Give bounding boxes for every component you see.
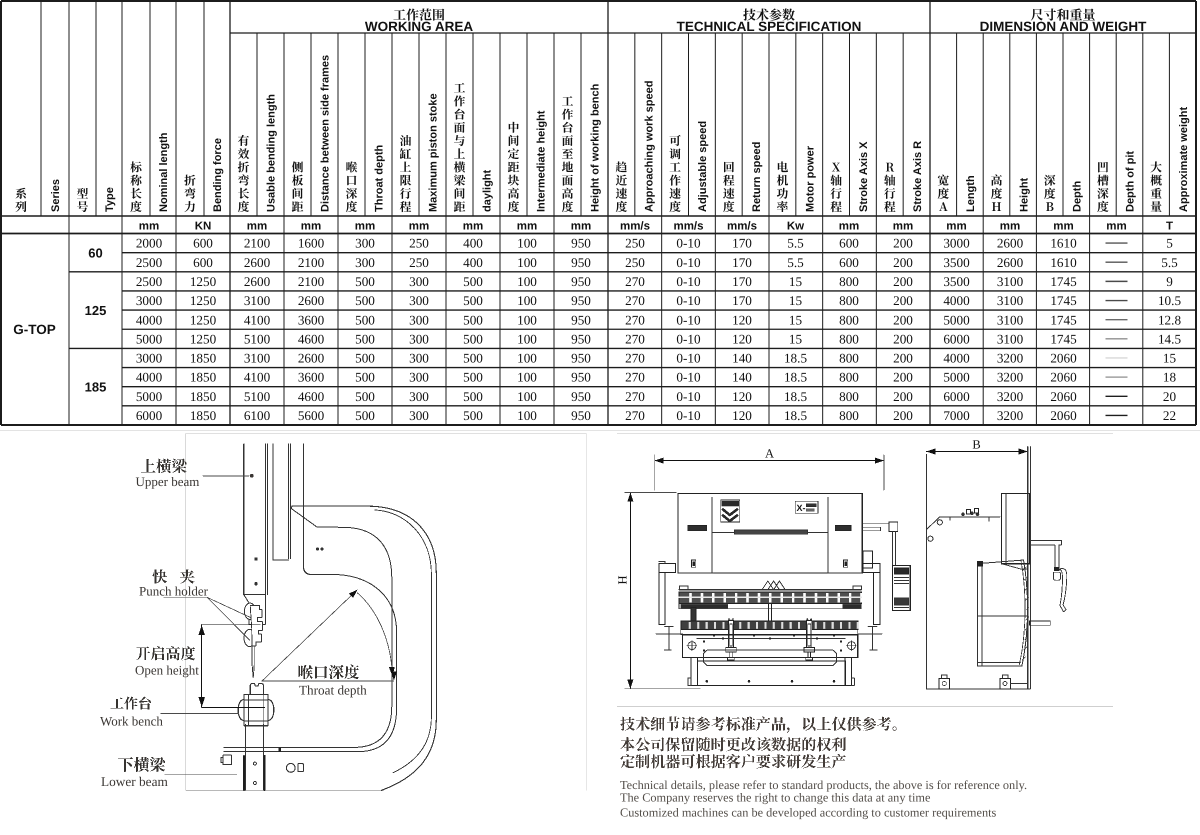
svg-text:500: 500 bbox=[463, 408, 483, 423]
svg-text:1745: 1745 bbox=[1050, 274, 1077, 289]
svg-text:500: 500 bbox=[355, 331, 375, 346]
svg-text:170: 170 bbox=[732, 274, 752, 289]
svg-text:200: 200 bbox=[893, 370, 913, 385]
svg-text:100: 100 bbox=[517, 293, 537, 308]
svg-text:Customized machines can be dev: Customized machines can be developed acc… bbox=[620, 806, 997, 820]
svg-text:Nominal length: Nominal length bbox=[158, 132, 170, 212]
svg-text:1745: 1745 bbox=[1050, 293, 1077, 308]
svg-text:Usable bending length: Usable bending length bbox=[266, 94, 278, 212]
svg-text:5100: 5100 bbox=[244, 331, 271, 346]
svg-text:500: 500 bbox=[463, 312, 483, 327]
svg-text:0-10: 0-10 bbox=[676, 293, 701, 308]
svg-text:100: 100 bbox=[517, 274, 537, 289]
svg-text:Stroke Axis R: Stroke Axis R bbox=[912, 141, 924, 212]
svg-text:500: 500 bbox=[355, 389, 375, 404]
svg-text:3000: 3000 bbox=[943, 236, 970, 251]
svg-text:Throat depth: Throat depth bbox=[374, 145, 386, 212]
svg-text:950: 950 bbox=[571, 408, 591, 423]
svg-text:270: 270 bbox=[625, 408, 645, 423]
svg-text:15: 15 bbox=[789, 274, 803, 289]
svg-text:950: 950 bbox=[571, 351, 591, 366]
svg-text:mm: mm bbox=[517, 221, 537, 233]
svg-text:0-10: 0-10 bbox=[676, 331, 701, 346]
svg-text:120: 120 bbox=[732, 312, 752, 327]
svg-text:5000: 5000 bbox=[136, 389, 163, 404]
svg-text:250: 250 bbox=[625, 255, 645, 270]
svg-text:1250: 1250 bbox=[190, 274, 217, 289]
svg-text:950: 950 bbox=[571, 389, 591, 404]
svg-text:mm/s: mm/s bbox=[673, 221, 703, 233]
svg-text:300: 300 bbox=[409, 312, 429, 327]
svg-text:0-10: 0-10 bbox=[676, 255, 701, 270]
svg-text:6000: 6000 bbox=[136, 408, 163, 423]
svg-text:2600: 2600 bbox=[997, 255, 1024, 270]
svg-text:Height: Height bbox=[1018, 177, 1030, 212]
svg-text:500: 500 bbox=[355, 312, 375, 327]
svg-text:0-10: 0-10 bbox=[676, 351, 701, 366]
svg-text:5.5: 5.5 bbox=[1161, 255, 1178, 270]
svg-text:mm: mm bbox=[139, 221, 159, 233]
svg-text:Adjustable speed: Adjustable speed bbox=[697, 121, 709, 212]
svg-text:800: 800 bbox=[839, 370, 859, 385]
svg-text:300: 300 bbox=[355, 236, 375, 251]
svg-text:9: 9 bbox=[1166, 274, 1173, 289]
svg-text:5000: 5000 bbox=[943, 370, 970, 385]
svg-text:mm/s: mm/s bbox=[727, 221, 757, 233]
svg-text:1745: 1745 bbox=[1050, 312, 1077, 327]
svg-text:6000: 6000 bbox=[943, 389, 970, 404]
svg-text:400: 400 bbox=[463, 236, 483, 251]
svg-text:300: 300 bbox=[409, 331, 429, 346]
svg-text:3500: 3500 bbox=[943, 255, 970, 270]
svg-text:B: B bbox=[972, 438, 980, 452]
svg-text:200: 200 bbox=[893, 236, 913, 251]
svg-text:0-10: 0-10 bbox=[676, 236, 701, 251]
svg-text:1850: 1850 bbox=[190, 351, 217, 366]
svg-text:500: 500 bbox=[463, 370, 483, 385]
svg-text:800: 800 bbox=[839, 389, 859, 404]
svg-text:Bending force: Bending force bbox=[212, 138, 224, 212]
svg-text:185: 185 bbox=[85, 380, 107, 395]
svg-text:2600: 2600 bbox=[244, 255, 271, 270]
svg-text:The Company reserves the right: The Company reserves the right to change… bbox=[620, 791, 931, 805]
svg-text:270: 270 bbox=[625, 331, 645, 346]
svg-text:800: 800 bbox=[839, 331, 859, 346]
svg-text:1610: 1610 bbox=[1050, 255, 1077, 270]
svg-text:800: 800 bbox=[839, 274, 859, 289]
svg-text:3200: 3200 bbox=[997, 408, 1024, 423]
svg-text:0-10: 0-10 bbox=[676, 312, 701, 327]
svg-text:KN: KN bbox=[195, 221, 212, 233]
svg-text:18.5: 18.5 bbox=[784, 408, 807, 423]
svg-text:1745: 1745 bbox=[1050, 331, 1077, 346]
svg-text:200: 200 bbox=[893, 331, 913, 346]
svg-text:Throat depth: Throat depth bbox=[299, 683, 367, 698]
svg-text:100: 100 bbox=[517, 389, 537, 404]
svg-text:3600: 3600 bbox=[298, 370, 325, 385]
svg-text:300: 300 bbox=[409, 370, 429, 385]
svg-text:950: 950 bbox=[571, 236, 591, 251]
svg-text:mm: mm bbox=[1053, 221, 1073, 233]
svg-text:Upper beam: Upper beam bbox=[136, 474, 200, 489]
svg-text:Approaching work speed: Approaching work speed bbox=[643, 81, 655, 212]
svg-text:2600: 2600 bbox=[298, 293, 325, 308]
svg-text:12.8: 12.8 bbox=[1158, 312, 1181, 327]
svg-text:0-10: 0-10 bbox=[676, 274, 701, 289]
svg-text:300: 300 bbox=[409, 351, 429, 366]
svg-text:2060: 2060 bbox=[1050, 408, 1077, 423]
svg-text:3100: 3100 bbox=[244, 351, 271, 366]
svg-text:950: 950 bbox=[571, 274, 591, 289]
svg-text:250: 250 bbox=[409, 255, 429, 270]
svg-text:mm: mm bbox=[463, 221, 483, 233]
svg-text:3100: 3100 bbox=[997, 312, 1024, 327]
svg-text:4000: 4000 bbox=[136, 370, 163, 385]
svg-text:1850: 1850 bbox=[190, 370, 217, 385]
svg-text:200: 200 bbox=[893, 255, 913, 270]
svg-text:4000: 4000 bbox=[136, 312, 163, 327]
svg-text:H: H bbox=[616, 575, 630, 584]
svg-text:3100: 3100 bbox=[997, 331, 1024, 346]
svg-text:Punch holder: Punch holder bbox=[139, 584, 209, 599]
svg-text:800: 800 bbox=[839, 351, 859, 366]
svg-text:3200: 3200 bbox=[997, 370, 1024, 385]
svg-text:300: 300 bbox=[409, 293, 429, 308]
svg-text:170: 170 bbox=[732, 236, 752, 251]
svg-text:18.5: 18.5 bbox=[784, 351, 807, 366]
svg-text:5000: 5000 bbox=[136, 331, 163, 346]
svg-text:270: 270 bbox=[625, 370, 645, 385]
svg-text:2500: 2500 bbox=[136, 274, 163, 289]
svg-text:1850: 1850 bbox=[190, 408, 217, 423]
svg-text:22: 22 bbox=[1163, 408, 1176, 423]
svg-text:mm: mm bbox=[301, 221, 321, 233]
svg-text:270: 270 bbox=[625, 312, 645, 327]
svg-text:120: 120 bbox=[732, 331, 752, 346]
svg-text:2100: 2100 bbox=[298, 274, 325, 289]
svg-text:5600: 5600 bbox=[298, 408, 325, 423]
svg-text:Kw: Kw bbox=[787, 221, 804, 233]
svg-text:4600: 4600 bbox=[298, 389, 325, 404]
svg-text:3500: 3500 bbox=[943, 274, 970, 289]
svg-text:4000: 4000 bbox=[943, 351, 970, 366]
svg-text:800: 800 bbox=[839, 293, 859, 308]
svg-text:6100: 6100 bbox=[244, 408, 271, 423]
svg-text:2000: 2000 bbox=[136, 236, 163, 251]
svg-text:170: 170 bbox=[732, 255, 752, 270]
svg-text:14.5: 14.5 bbox=[1158, 331, 1181, 346]
svg-text:500: 500 bbox=[355, 351, 375, 366]
svg-text:mm: mm bbox=[571, 221, 591, 233]
svg-text:300: 300 bbox=[409, 389, 429, 404]
svg-text:500: 500 bbox=[463, 293, 483, 308]
svg-text:600: 600 bbox=[839, 236, 859, 251]
svg-text:500: 500 bbox=[355, 293, 375, 308]
svg-text:1250: 1250 bbox=[190, 331, 217, 346]
svg-text:Series: Series bbox=[50, 179, 62, 212]
svg-text:mm: mm bbox=[247, 221, 267, 233]
svg-text:2600: 2600 bbox=[997, 236, 1024, 251]
svg-text:mm/s: mm/s bbox=[620, 221, 650, 233]
svg-text:100: 100 bbox=[517, 331, 537, 346]
svg-text:300: 300 bbox=[409, 274, 429, 289]
svg-text:4000: 4000 bbox=[943, 293, 970, 308]
svg-text:18: 18 bbox=[1163, 370, 1177, 385]
svg-text:G-TOP: G-TOP bbox=[13, 322, 56, 337]
svg-text:3000: 3000 bbox=[136, 351, 163, 366]
svg-text:daylight: daylight bbox=[482, 169, 494, 212]
svg-text:20: 20 bbox=[1163, 389, 1177, 404]
svg-text:250: 250 bbox=[625, 236, 645, 251]
svg-text:1610: 1610 bbox=[1050, 236, 1077, 251]
svg-text:2500: 2500 bbox=[136, 255, 163, 270]
svg-text:mm: mm bbox=[409, 221, 429, 233]
svg-text:18.5: 18.5 bbox=[784, 370, 807, 385]
svg-text:Depth: Depth bbox=[1072, 181, 1084, 212]
svg-text:mm: mm bbox=[1106, 221, 1126, 233]
svg-text:500: 500 bbox=[463, 274, 483, 289]
svg-text:125: 125 bbox=[85, 303, 107, 318]
svg-text:0-10: 0-10 bbox=[676, 408, 701, 423]
svg-text:2100: 2100 bbox=[298, 255, 325, 270]
svg-text:950: 950 bbox=[571, 370, 591, 385]
svg-text:Stroke Axis X: Stroke Axis X bbox=[858, 141, 870, 212]
svg-text:Work bench: Work bench bbox=[100, 714, 163, 729]
svg-text:Type: Type bbox=[104, 187, 116, 212]
svg-text:5000: 5000 bbox=[943, 312, 970, 327]
svg-text:4600: 4600 bbox=[298, 331, 325, 346]
svg-text:60: 60 bbox=[88, 246, 102, 261]
svg-text:950: 950 bbox=[571, 312, 591, 327]
svg-text:TECHNICAL SPECIFICATION: TECHNICAL SPECIFICATION bbox=[677, 19, 862, 34]
svg-text:170: 170 bbox=[732, 293, 752, 308]
svg-text:2060: 2060 bbox=[1050, 351, 1077, 366]
svg-text:140: 140 bbox=[732, 370, 752, 385]
svg-text:Distance between side frames: Distance between side frames bbox=[320, 55, 332, 212]
svg-text:500: 500 bbox=[463, 351, 483, 366]
svg-text:800: 800 bbox=[839, 408, 859, 423]
svg-text:270: 270 bbox=[625, 389, 645, 404]
svg-text:800: 800 bbox=[839, 312, 859, 327]
svg-text:15: 15 bbox=[789, 293, 803, 308]
svg-text:18.5: 18.5 bbox=[784, 389, 807, 404]
svg-text:200: 200 bbox=[893, 408, 913, 423]
svg-text:500: 500 bbox=[463, 331, 483, 346]
svg-text:2060: 2060 bbox=[1050, 370, 1077, 385]
svg-text:3600: 3600 bbox=[298, 312, 325, 327]
svg-text:1250: 1250 bbox=[190, 312, 217, 327]
svg-text:140: 140 bbox=[732, 351, 752, 366]
svg-text:200: 200 bbox=[893, 312, 913, 327]
svg-text:200: 200 bbox=[893, 293, 913, 308]
svg-text:100: 100 bbox=[517, 312, 537, 327]
svg-text:15: 15 bbox=[789, 331, 803, 346]
svg-text:mm: mm bbox=[839, 221, 859, 233]
svg-text:2060: 2060 bbox=[1050, 389, 1077, 404]
svg-text:2100: 2100 bbox=[244, 236, 271, 251]
svg-text:mm: mm bbox=[946, 221, 966, 233]
svg-text:100: 100 bbox=[517, 351, 537, 366]
svg-text:500: 500 bbox=[355, 274, 375, 289]
svg-text:950: 950 bbox=[571, 293, 591, 308]
svg-text:A: A bbox=[765, 447, 774, 461]
svg-text:7000: 7000 bbox=[943, 408, 970, 423]
svg-text:250: 250 bbox=[409, 236, 429, 251]
svg-text:Approximate weight: Approximate weight bbox=[1178, 107, 1190, 212]
svg-text:100: 100 bbox=[517, 255, 537, 270]
svg-text:3100: 3100 bbox=[997, 274, 1024, 289]
svg-text:0-10: 0-10 bbox=[676, 370, 701, 385]
svg-text:1850: 1850 bbox=[190, 389, 217, 404]
svg-text:3000: 3000 bbox=[136, 293, 163, 308]
svg-text:4100: 4100 bbox=[244, 312, 271, 327]
svg-text:0-10: 0-10 bbox=[676, 389, 701, 404]
svg-text:Open height: Open height bbox=[135, 663, 199, 678]
svg-text:mm: mm bbox=[1000, 221, 1020, 233]
svg-text:X-: X- bbox=[797, 503, 806, 513]
svg-text:950: 950 bbox=[571, 331, 591, 346]
svg-text:400: 400 bbox=[463, 255, 483, 270]
svg-text:120: 120 bbox=[732, 389, 752, 404]
svg-text:mm: mm bbox=[893, 221, 913, 233]
svg-text:950: 950 bbox=[571, 255, 591, 270]
svg-text:270: 270 bbox=[625, 351, 645, 366]
svg-text:3100: 3100 bbox=[997, 293, 1024, 308]
svg-text:100: 100 bbox=[517, 236, 537, 251]
svg-text:500: 500 bbox=[463, 389, 483, 404]
svg-text:mm: mm bbox=[355, 221, 375, 233]
svg-text:Maximum piston stoke: Maximum piston stoke bbox=[428, 93, 440, 212]
svg-text:6000: 6000 bbox=[943, 331, 970, 346]
svg-text:200: 200 bbox=[893, 389, 913, 404]
svg-text:Return speed: Return speed bbox=[751, 142, 763, 212]
svg-text:300: 300 bbox=[409, 408, 429, 423]
svg-text:3200: 3200 bbox=[997, 389, 1024, 404]
svg-text:10.5: 10.5 bbox=[1158, 293, 1181, 308]
svg-text:WORKING AREA: WORKING AREA bbox=[365, 19, 473, 34]
svg-text:3200: 3200 bbox=[997, 351, 1024, 366]
svg-text:5: 5 bbox=[1166, 236, 1173, 251]
svg-text:15: 15 bbox=[789, 312, 803, 327]
svg-text:100: 100 bbox=[517, 370, 537, 385]
svg-text:120: 120 bbox=[732, 408, 752, 423]
svg-text:200: 200 bbox=[893, 351, 913, 366]
svg-text:100: 100 bbox=[517, 408, 537, 423]
svg-text:5.5: 5.5 bbox=[787, 236, 804, 251]
svg-text:Lower beam: Lower beam bbox=[101, 774, 168, 789]
svg-text:DIMENSION AND WEIGHT: DIMENSION AND WEIGHT bbox=[980, 19, 1147, 34]
svg-text:2600: 2600 bbox=[298, 351, 325, 366]
svg-text:3100: 3100 bbox=[244, 293, 271, 308]
svg-text:Motor power: Motor power bbox=[804, 145, 816, 212]
svg-text:500: 500 bbox=[355, 408, 375, 423]
svg-text:5.5: 5.5 bbox=[787, 255, 804, 270]
svg-text:15: 15 bbox=[1163, 351, 1177, 366]
svg-text:2600: 2600 bbox=[244, 274, 271, 289]
svg-text:T: T bbox=[1166, 221, 1173, 233]
svg-text:Intermediate height: Intermediate height bbox=[536, 110, 548, 212]
svg-text:Length: Length bbox=[965, 175, 977, 212]
svg-text:270: 270 bbox=[625, 293, 645, 308]
svg-text:270: 270 bbox=[625, 274, 645, 289]
svg-text:200: 200 bbox=[893, 274, 913, 289]
svg-text:4100: 4100 bbox=[244, 370, 271, 385]
svg-text:300: 300 bbox=[355, 255, 375, 270]
svg-text:600: 600 bbox=[193, 255, 213, 270]
svg-text:Height of working bench: Height of working bench bbox=[590, 83, 602, 212]
svg-text:600: 600 bbox=[839, 255, 859, 270]
svg-text:500: 500 bbox=[355, 370, 375, 385]
svg-text:600: 600 bbox=[193, 236, 213, 251]
svg-text:1250: 1250 bbox=[190, 293, 217, 308]
svg-text:1600: 1600 bbox=[298, 236, 325, 251]
svg-text:5100: 5100 bbox=[244, 389, 271, 404]
svg-text:Depth of pit: Depth of pit bbox=[1125, 151, 1137, 212]
